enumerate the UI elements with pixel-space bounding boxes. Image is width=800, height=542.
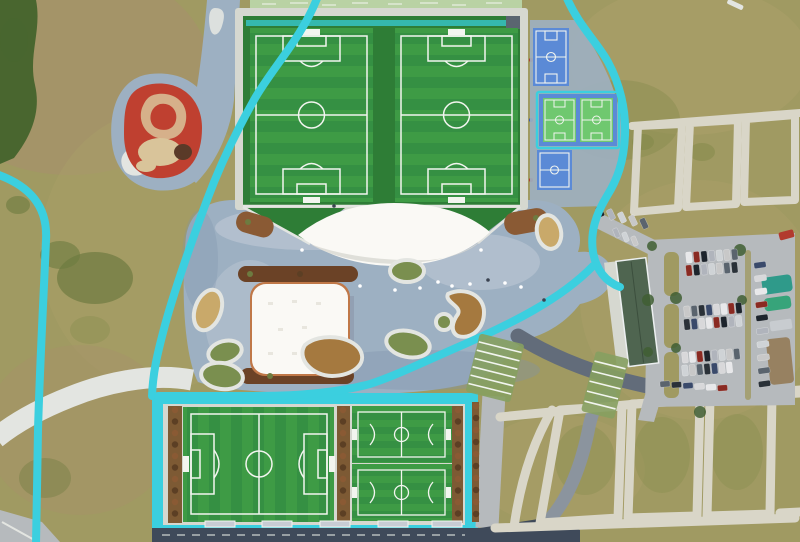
car <box>733 348 740 360</box>
person-dot <box>519 285 523 289</box>
tree-dot <box>340 499 346 505</box>
tree-dot <box>473 463 479 469</box>
tree-dot <box>455 430 461 436</box>
tree <box>670 292 682 304</box>
tree-dot <box>455 453 461 459</box>
car <box>683 382 693 389</box>
tree-dot <box>172 430 178 436</box>
person-dot <box>468 282 472 286</box>
tree-dot <box>455 499 461 505</box>
tree-dot <box>340 487 346 493</box>
tree-dot <box>340 407 346 413</box>
person-dot <box>332 204 336 208</box>
tree-dot <box>455 476 461 482</box>
car <box>713 317 720 329</box>
car <box>706 384 716 391</box>
car <box>696 351 703 363</box>
person-dot <box>503 281 507 285</box>
car <box>689 351 696 363</box>
north-field-complex <box>235 0 533 210</box>
south-pitch-small-1 <box>352 406 452 463</box>
car <box>720 303 727 315</box>
tree-dot <box>455 510 461 516</box>
tree-dot <box>340 418 346 424</box>
tree <box>643 347 653 357</box>
tree-dot <box>340 441 346 447</box>
car <box>718 349 725 361</box>
car <box>728 303 735 315</box>
tree-dot <box>473 439 479 445</box>
south-pitch-small-2 <box>352 464 452 521</box>
car <box>708 250 715 262</box>
person-dot <box>393 288 397 292</box>
car <box>723 249 730 261</box>
car <box>698 305 705 317</box>
person-dot <box>436 280 440 284</box>
pitch-a <box>250 28 373 203</box>
tree-dot <box>455 464 461 470</box>
tree-dot <box>455 418 461 424</box>
island <box>390 260 424 282</box>
car <box>711 363 718 375</box>
island <box>302 337 362 376</box>
north-pale-band <box>250 0 522 9</box>
car <box>720 316 727 328</box>
person-dot <box>479 248 483 252</box>
tree-dot <box>455 487 461 493</box>
tree-dot <box>340 430 346 436</box>
tree-dot <box>172 407 178 413</box>
court-pair <box>537 92 619 148</box>
tree-dot <box>473 475 479 481</box>
car <box>718 362 725 374</box>
bleacher <box>432 521 462 527</box>
tree-dot <box>340 510 346 516</box>
tree-dot <box>340 453 346 459</box>
tree-dot <box>455 407 461 413</box>
tree-dot <box>473 511 479 517</box>
tree-dot <box>172 453 178 459</box>
tree <box>642 294 654 306</box>
south-pitch-large <box>183 407 335 522</box>
car <box>731 249 738 261</box>
tree-dot <box>473 427 479 433</box>
person-dot <box>300 248 304 252</box>
tree-dot <box>172 476 178 482</box>
car <box>671 381 681 388</box>
car <box>711 350 718 362</box>
person-dot <box>542 298 546 302</box>
tree <box>647 241 657 251</box>
tree-dot <box>172 499 178 505</box>
car <box>728 316 735 328</box>
bleacher <box>320 521 350 527</box>
car <box>726 362 733 374</box>
tree-dot <box>172 487 178 493</box>
car <box>701 251 708 263</box>
tree <box>694 406 706 418</box>
person-dot <box>486 278 490 282</box>
tree-dot <box>473 499 479 505</box>
bleacher <box>205 521 235 527</box>
tree-dot <box>473 487 479 493</box>
car <box>704 350 711 362</box>
car <box>701 264 708 276</box>
car <box>660 381 670 388</box>
person-dot <box>450 284 454 288</box>
car <box>706 317 713 329</box>
bleacher <box>262 521 292 527</box>
car <box>698 318 705 330</box>
tree-dot <box>473 403 479 409</box>
car <box>685 252 692 264</box>
car <box>691 305 698 317</box>
car <box>693 251 700 263</box>
pitch-b <box>395 28 518 203</box>
bleacher <box>378 521 408 527</box>
tree <box>671 343 681 353</box>
aerial-photo <box>0 0 800 542</box>
car <box>723 262 730 274</box>
car <box>708 263 715 275</box>
car <box>716 263 723 275</box>
car <box>731 262 738 274</box>
car <box>693 264 700 276</box>
car <box>683 319 690 331</box>
car <box>696 364 703 376</box>
car <box>685 265 692 277</box>
tree-dot <box>473 415 479 421</box>
person-dot <box>358 284 362 288</box>
car <box>716 250 723 262</box>
car <box>683 306 690 318</box>
tree-dot <box>340 464 346 470</box>
car <box>681 365 688 377</box>
car <box>735 302 742 314</box>
tree-dot <box>473 451 479 457</box>
scene-canvas <box>0 0 800 542</box>
tree-dot <box>172 510 178 516</box>
court-south <box>537 150 572 190</box>
tree-dot <box>172 464 178 470</box>
car <box>713 304 720 316</box>
car <box>706 304 713 316</box>
car <box>726 349 733 361</box>
red-playground <box>111 74 214 191</box>
car <box>694 383 704 390</box>
car <box>691 318 698 330</box>
tree-dot <box>172 418 178 424</box>
car <box>717 385 727 392</box>
car <box>735 315 742 327</box>
car <box>689 364 696 376</box>
island <box>436 314 452 330</box>
car <box>704 363 711 375</box>
car <box>681 352 688 364</box>
court-north <box>533 28 569 86</box>
tree-dot <box>172 441 178 447</box>
person-dot <box>418 286 422 290</box>
tree-dot <box>340 476 346 482</box>
tree-dot <box>455 441 461 447</box>
